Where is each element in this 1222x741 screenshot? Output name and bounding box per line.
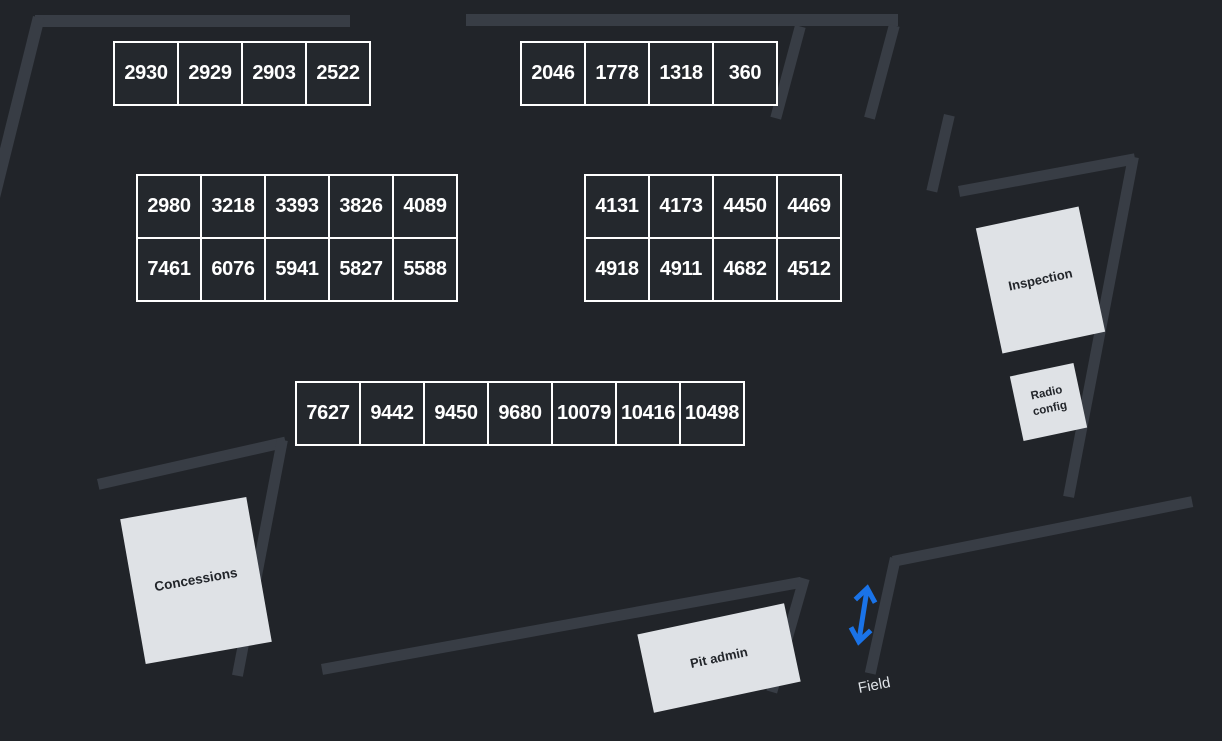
wall-top-left-horizontal (35, 15, 350, 27)
pit-group-center-right: 41314173445044694918491146824512 (584, 174, 842, 302)
field-label: Field (857, 674, 892, 697)
pit-box-2522: 2522 (305, 41, 371, 106)
radio-config-area-label: Radio config (1024, 382, 1073, 422)
pit-row: 4131417344504469 (584, 174, 842, 239)
inspection-area: Inspection (976, 206, 1105, 353)
pit-box-2929: 2929 (177, 41, 243, 106)
pit-box-1318: 1318 (648, 41, 714, 106)
pit-box-5941: 5941 (264, 237, 330, 302)
pit-box-7627: 7627 (295, 381, 361, 446)
pit-row: 4918491146824512 (584, 237, 842, 302)
pit-map: 2930292929032522 204617781318360 2980321… (0, 0, 1222, 741)
pit-box-9450: 9450 (423, 381, 489, 446)
pit-box-5827: 5827 (328, 237, 394, 302)
pit-box-4682: 4682 (712, 237, 778, 302)
pit-box-2903: 2903 (241, 41, 307, 106)
pit-row: 7627944294509680100791041610498 (295, 381, 745, 446)
concessions-area-label: Concessions (153, 564, 239, 597)
pit-row: 2930292929032522 (113, 41, 371, 106)
radio-config-area: Radio config (1010, 363, 1087, 441)
pit-box-3826: 3826 (328, 174, 394, 239)
pit-box-6076: 6076 (200, 237, 266, 302)
concessions-area: Concessions (120, 497, 272, 664)
pit-box-3218: 3218 (200, 174, 266, 239)
pit-box-7461: 7461 (136, 237, 202, 302)
pit-group-top-left: 2930292929032522 (113, 41, 371, 106)
inspection-area-label: Inspection (1007, 265, 1074, 296)
pit-box-4911: 4911 (648, 237, 714, 302)
wall-concessions-top (97, 437, 287, 490)
pit-box-10416: 10416 (615, 381, 681, 446)
wall-top-prong-right (864, 24, 899, 120)
pit-box-2046: 2046 (520, 41, 586, 106)
wall-left-slant (0, 16, 45, 296)
pit-box-4173: 4173 (648, 174, 714, 239)
pit-box-10079: 10079 (551, 381, 617, 446)
pit-box-4450: 4450 (712, 174, 778, 239)
pit-box-1778: 1778 (584, 41, 650, 106)
wall-bottom-right-horizontal (892, 496, 1193, 567)
pit-box-4089: 4089 (392, 174, 458, 239)
pit-row: 204617781318360 (520, 41, 778, 106)
wall-inspection-upper-vertical (926, 114, 954, 192)
pit-row: 74616076594158275588 (136, 237, 458, 302)
pit-group-top-center: 204617781318360 (520, 41, 778, 106)
pit-box-5588: 5588 (392, 237, 458, 302)
wall-top-center-horizontal (466, 14, 898, 26)
double-arrow-strokes (849, 587, 877, 643)
pit-box-360: 360 (712, 41, 778, 106)
pit-admin-area: Pit admin (637, 603, 800, 712)
pit-box-9442: 9442 (359, 381, 425, 446)
pit-box-4512: 4512 (776, 237, 842, 302)
pit-box-4469: 4469 (776, 174, 842, 239)
pit-row: 29803218339338264089 (136, 174, 458, 239)
pit-box-4918: 4918 (584, 237, 650, 302)
pit-box-3393: 3393 (264, 174, 330, 239)
pit-box-2980: 2980 (136, 174, 202, 239)
pit-box-2930: 2930 (113, 41, 179, 106)
pit-admin-area-label: Pit admin (689, 643, 750, 672)
pit-group-bottom-center: 7627944294509680100791041610498 (295, 381, 745, 446)
pit-box-10498: 10498 (679, 381, 745, 446)
pit-box-9680: 9680 (487, 381, 553, 446)
pit-group-center-left: 2980321833933826408974616076594158275588 (136, 174, 458, 302)
pit-box-4131: 4131 (584, 174, 650, 239)
wall-inspection-horizontal (958, 153, 1136, 196)
